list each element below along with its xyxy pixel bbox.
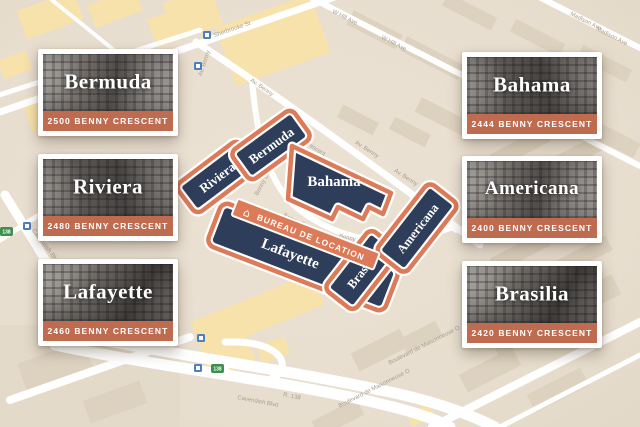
building-photo-lafayette: Lafayette xyxy=(43,264,173,321)
building-name: Bermuda xyxy=(43,69,173,94)
building-photo-riviera: Riviera xyxy=(43,159,173,216)
property-card-bermuda[interactable]: Bermuda 2500 BENNY CRESCENT xyxy=(38,49,178,136)
building-address: 2400 BENNY CRESCENT xyxy=(467,218,597,238)
transit-icon xyxy=(194,62,202,70)
building-photo-bahama: Bahama xyxy=(467,57,597,114)
building-photo-brasilia: Brasilia xyxy=(467,266,597,323)
transit-icon xyxy=(197,334,205,342)
route-138-badge: 138 xyxy=(0,227,13,236)
building-photo-bermuda: Bermuda xyxy=(43,54,173,111)
svg-text:138: 138 xyxy=(2,230,11,236)
building-address: 2500 BENNY CRESCENT xyxy=(43,111,173,131)
building-name: Americana xyxy=(467,178,597,200)
building-address: 2444 BENNY CRESCENT xyxy=(467,114,597,134)
building-name: Bahama xyxy=(467,72,597,97)
svg-text:Bahama: Bahama xyxy=(307,174,361,190)
building-address: 2480 BENNY CRESCENT xyxy=(43,216,173,236)
site-map-page: Sherbrooke St W Hill Ave W Hill Ave Madi… xyxy=(0,0,640,427)
building-name: Riviera xyxy=(43,174,173,199)
building-address: 2460 BENNY CRESCENT xyxy=(43,321,173,341)
transit-icon xyxy=(23,222,31,230)
transit-icon xyxy=(203,31,211,39)
route-138-badge: 138 xyxy=(211,364,224,373)
property-card-riviera[interactable]: Riviera 2480 BENNY CRESCENT xyxy=(38,154,178,241)
building-name: Brasilia xyxy=(467,281,597,306)
building-address: 2420 BENNY CRESCENT xyxy=(467,323,597,343)
property-card-lafayette[interactable]: Lafayette 2460 BENNY CRESCENT xyxy=(38,259,178,346)
svg-text:138: 138 xyxy=(213,367,222,373)
building-name: Lafayette xyxy=(43,279,173,304)
property-card-brasilia[interactable]: Brasilia 2420 BENNY CRESCENT xyxy=(462,261,602,348)
property-card-bahama[interactable]: Bahama 2444 BENNY CRESCENT xyxy=(462,52,602,139)
building-photo-americana: Americana xyxy=(467,161,597,218)
property-card-americana[interactable]: Americana 2400 BENNY CRESCENT xyxy=(462,156,602,243)
transit-icon xyxy=(194,364,202,372)
